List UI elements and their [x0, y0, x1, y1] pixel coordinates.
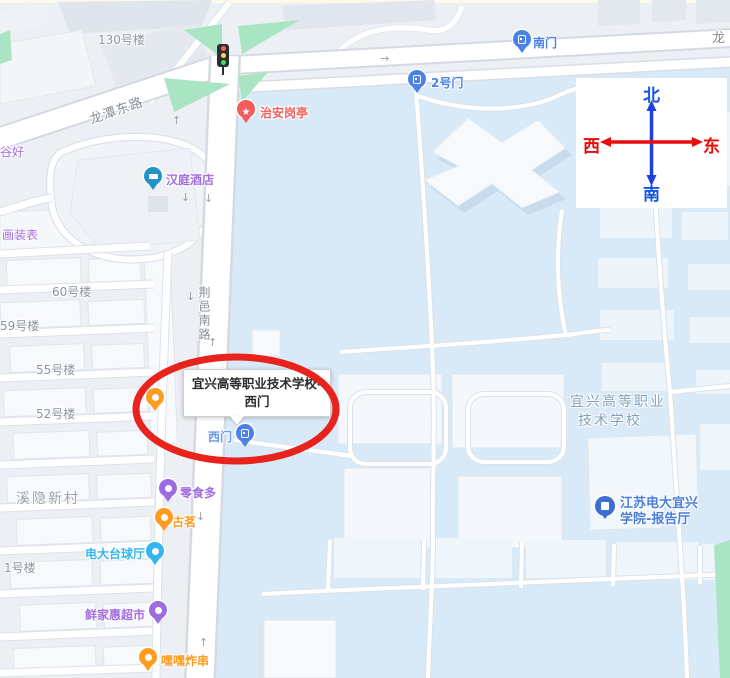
poi-label-hotel[interactable]: 汉庭酒店: [166, 171, 214, 188]
security-kiosk-pin[interactable]: [237, 100, 255, 118]
gate-label-west[interactable]: 西门: [208, 428, 232, 445]
poi-label-tea[interactable]: 古茗: [172, 513, 196, 530]
compass: 北 南 西 东: [576, 78, 727, 208]
skewers-pin[interactable]: [139, 648, 157, 666]
snack-shop-pin[interactable]: [159, 479, 177, 497]
campus-name-line1: 宜兴高等职业: [570, 391, 666, 411]
campus-name-line2: 技术学校: [578, 410, 642, 430]
map-canvas[interactable]: 130号楼 龙潭东路 龙 荆邑南路 谷好 画装表 60号楼 59号楼 55号楼 …: [0, 0, 730, 678]
poi-label-snack[interactable]: 零食多: [180, 484, 216, 501]
poi-label-skewers[interactable]: 嘿嘿炸串: [161, 652, 209, 669]
skewer-icon: [145, 654, 152, 661]
tea-shop-pin[interactable]: [155, 508, 173, 526]
poi-label-partial-top[interactable]: 谷好: [0, 143, 24, 160]
lecture-hall-line2: 学院-报告厅: [620, 512, 698, 528]
lecture-hall-line1: 江苏电大宜兴: [620, 496, 698, 512]
shopping-cart-icon: [155, 607, 162, 614]
star-icon: [242, 100, 251, 119]
shopping-bag-icon: [165, 485, 172, 492]
one-way-arrow-icon: ↑: [172, 114, 181, 127]
callout-line2: 西门: [187, 393, 327, 411]
west-gate-callout: 宜兴高等职业技术学校- 西门: [183, 369, 331, 417]
road-label-longtan-partial: 龙: [712, 27, 725, 46]
building-label-1: 1号楼: [4, 559, 36, 576]
gate-label-south[interactable]: 南门: [533, 34, 557, 51]
compass-south-label: 南: [576, 180, 727, 205]
building-label-60: 60号楼: [52, 283, 91, 300]
supermarket-pin[interactable]: [149, 601, 167, 619]
poi-label-market[interactable]: 鲜家惠超市: [85, 606, 145, 623]
building-label-55: 55号楼: [36, 361, 75, 378]
one-way-arrow-icon: ↓: [181, 191, 190, 204]
lecture-hall-pin[interactable]: [595, 496, 615, 516]
poi-label-billiards[interactable]: 电大台球厅: [85, 545, 145, 562]
poi-label-lecture-hall[interactable]: 江苏电大宜兴 学院-报告厅: [620, 496, 698, 528]
bed-icon: [149, 174, 158, 179]
building-icon: [601, 502, 609, 510]
hidden-poi-pin[interactable]: [146, 388, 164, 406]
one-way-arrow-icon: ↓: [196, 510, 205, 523]
compass-east-label: 东: [703, 132, 720, 157]
gate-label-2[interactable]: 2号门: [431, 74, 463, 91]
poi-label-partial-mid[interactable]: 画装表: [2, 226, 38, 243]
road-label-jingyi-south: 荆邑南路: [196, 286, 213, 342]
south-gate-pin[interactable]: [513, 30, 531, 48]
building-label-52: 52号楼: [36, 405, 75, 422]
area-label-village: 溪隐新村: [16, 488, 80, 508]
billiards-pin[interactable]: [146, 542, 164, 560]
one-way-arrow-icon: ↑: [199, 636, 208, 649]
one-way-arrow-icon: ↓: [204, 192, 213, 205]
milk-tea-icon: [161, 514, 168, 521]
one-way-arrow-icon: →: [380, 52, 389, 65]
traffic-light-icon: [217, 44, 229, 75]
billiards-icon: [152, 548, 159, 555]
gate-icon: [241, 429, 249, 438]
gate-icon: [518, 35, 526, 44]
one-way-arrow-icon: ↓: [186, 290, 195, 303]
gate2-pin[interactable]: [408, 70, 426, 88]
hotel-pin[interactable]: [144, 167, 162, 185]
callout-line1: 宜兴高等职业技术学校-: [187, 375, 327, 393]
compass-west-label: 西: [583, 132, 600, 157]
west-gate-pin[interactable]: [236, 424, 254, 442]
building-label-130: 130号楼: [98, 31, 145, 48]
gate-icon: [413, 75, 421, 84]
poi-label-security[interactable]: 治安岗亭: [260, 104, 308, 121]
building-label-59: 59号楼: [0, 317, 39, 334]
poi-icon: [152, 394, 159, 401]
compass-north-label: 北: [576, 81, 727, 106]
